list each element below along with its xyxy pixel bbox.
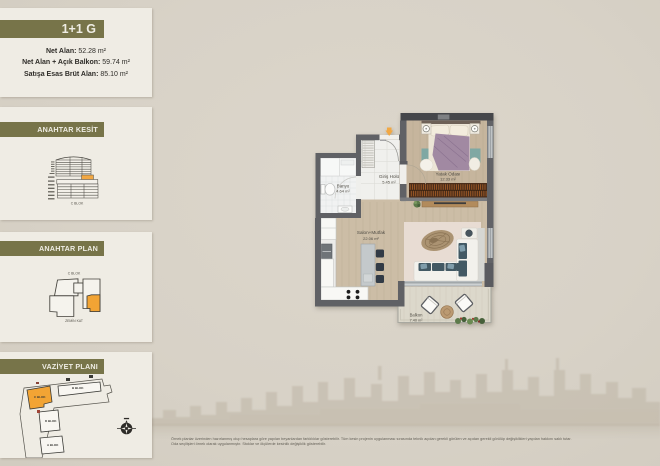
svg-text:Balkon: Balkon <box>410 313 423 318</box>
svg-text:7.40 m²: 7.40 m² <box>410 318 424 322</box>
svg-text:D BLOK: D BLOK <box>45 419 57 423</box>
svg-text:ZEMİN KAT: ZEMİN KAT <box>65 318 83 323</box>
svg-text:4.64 m²: 4.64 m² <box>336 189 350 194</box>
svg-text:12.33 m²: 12.33 m² <box>440 177 456 182</box>
svg-text:C BLOK: C BLOK <box>68 272 81 276</box>
svg-text:Salon+Mutfak: Salon+Mutfak <box>357 230 386 235</box>
svg-text:22.06 m²: 22.06 m² <box>363 236 379 241</box>
svg-text:C BLOK: C BLOK <box>71 202 84 206</box>
svg-text:C BLOK: C BLOK <box>34 395 46 399</box>
svg-text:5.45 m²: 5.45 m² <box>382 180 396 185</box>
svg-text:B BLOK: B BLOK <box>72 386 84 390</box>
svg-text:Giriş Holü: Giriş Holü <box>379 174 400 179</box>
svg-text:A BLOK: A BLOK <box>47 443 59 447</box>
